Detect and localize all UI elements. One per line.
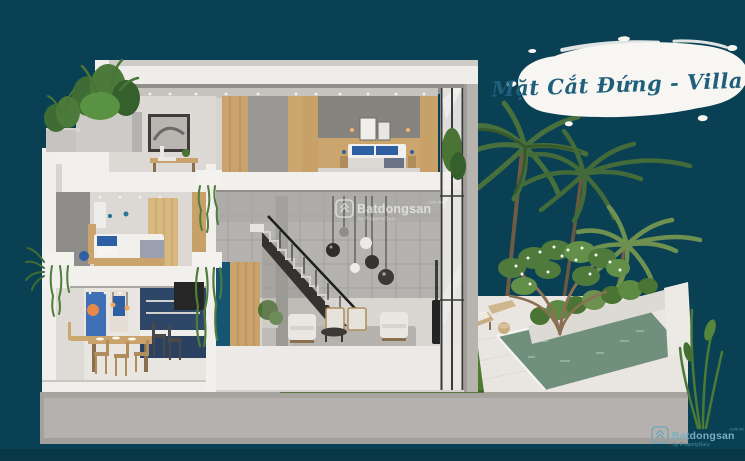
- footer-byline: by PropertyGuru: [673, 442, 710, 448]
- lounge-chair: [326, 308, 344, 330]
- desk-plant: [182, 149, 190, 157]
- stool: [79, 251, 89, 261]
- bed-pillow: [352, 146, 374, 155]
- wood-panel: [288, 96, 302, 172]
- pendant-bulb: [125, 306, 130, 311]
- top-floor-corridor: [222, 96, 302, 172]
- wall-lamp: [350, 128, 354, 132]
- teal-feature-wall: [216, 262, 230, 346]
- wall-art: [360, 118, 376, 140]
- bed-pillow: [376, 146, 398, 155]
- bed-pillow: [97, 236, 117, 246]
- kitchen-counter: [140, 330, 206, 336]
- villa-section-rendering: Batdongsan .com.vn by PropertyGuru Batdo…: [0, 0, 745, 461]
- watermark-suffix: .com.vn: [426, 201, 443, 206]
- floor-slab-upper: [95, 172, 478, 192]
- scene-svg: Batdongsan .com.vn by PropertyGuru Batdo…: [0, 0, 745, 461]
- corridor-wall: [248, 96, 288, 172]
- coffee-table: [321, 328, 347, 337]
- pendant-bulb: [111, 303, 116, 308]
- footer-strip: [0, 449, 745, 461]
- second-floor-bedroom: [56, 192, 206, 266]
- watermark-byline: by PropertyGuru: [358, 217, 396, 223]
- villa-section: [42, 60, 478, 392]
- living-floor: [216, 346, 478, 392]
- wood-door: [222, 96, 248, 172]
- footer-brand: Batdongsan: [672, 430, 735, 442]
- nightstand: [408, 156, 416, 168]
- concrete-plinth: [40, 392, 688, 444]
- nightstand: [340, 156, 348, 168]
- bench: [70, 336, 88, 341]
- watermark-brand: Batdongsan: [357, 202, 431, 216]
- master-bedroom: [302, 96, 438, 172]
- range-hood: [174, 282, 204, 310]
- lounge-chair: [348, 308, 366, 330]
- footer-suffix: .com.vn: [729, 427, 744, 432]
- wall-lamp: [406, 128, 410, 132]
- dining-kitchen: [56, 282, 212, 380]
